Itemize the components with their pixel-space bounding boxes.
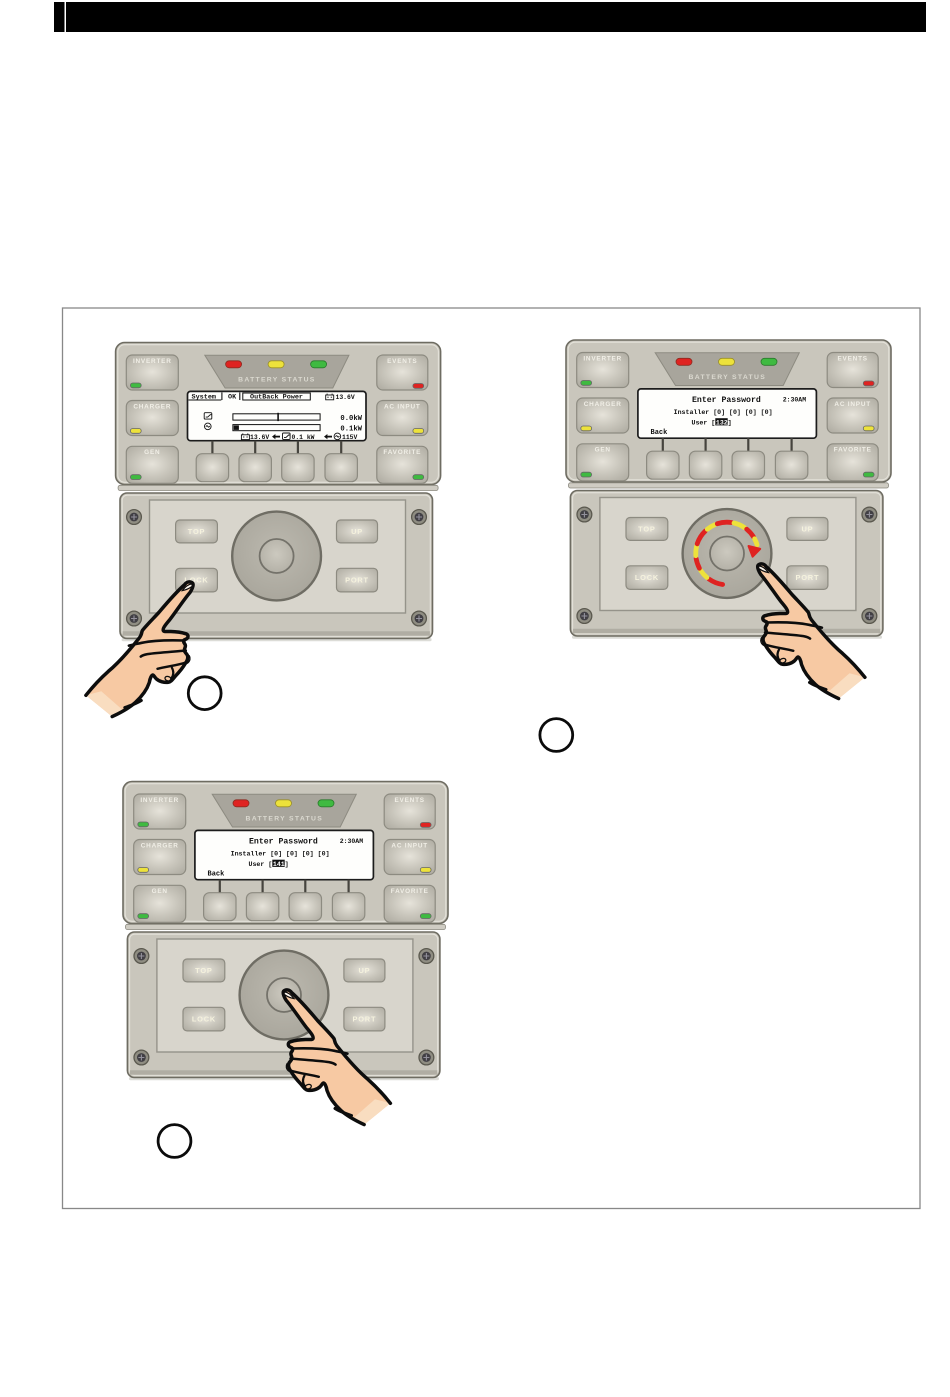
svg-text:BATTERY STATUS: BATTERY STATUS [689, 374, 766, 381]
svg-text:OutBack Power: OutBack Power [250, 394, 303, 402]
svg-text:CHARGER: CHARGER [584, 401, 622, 408]
svg-text:OK: OK [228, 394, 237, 402]
svg-text:13.6V: 13.6V [250, 434, 269, 441]
svg-text:FAVORITE: FAVORITE [383, 449, 421, 456]
svg-text:User [: User [ [249, 861, 273, 868]
svg-text:]: ] [728, 419, 732, 426]
svg-text:GEN: GEN [144, 449, 160, 456]
svg-text:FAVORITE: FAVORITE [834, 447, 872, 454]
svg-text:PORT: PORT [353, 1015, 377, 1024]
svg-text:13.6V: 13.6V [336, 394, 355, 401]
svg-text:LOCK: LOCK [192, 1015, 216, 1024]
svg-text:LOCK: LOCK [635, 573, 659, 582]
svg-text:UP: UP [358, 966, 370, 975]
svg-text:CHARGER: CHARGER [133, 403, 171, 410]
svg-text:FAVORITE: FAVORITE [391, 888, 429, 895]
svg-text:AC INPUT: AC INPUT [391, 842, 428, 849]
svg-text:0.0kW: 0.0kW [340, 415, 362, 423]
svg-text:UP: UP [801, 525, 813, 534]
svg-text:2:30AM: 2:30AM [783, 397, 807, 404]
svg-text:User [: User [ [692, 419, 716, 426]
svg-text:BATTERY STATUS: BATTERY STATUS [238, 377, 315, 384]
svg-text:0.1 kW: 0.1 kW [292, 434, 315, 441]
svg-text:GEN: GEN [595, 447, 611, 454]
svg-text:Installer [0] [0] [0] [0]: Installer [0] [0] [0] [0] [674, 409, 773, 416]
svg-text:GEN: GEN [152, 888, 168, 895]
svg-text:115V: 115V [342, 434, 358, 441]
svg-text:2:30AM: 2:30AM [340, 838, 364, 845]
svg-text:132: 132 [716, 419, 728, 426]
svg-text:Back: Back [208, 871, 225, 879]
svg-text:Enter Password: Enter Password [692, 395, 761, 405]
svg-text:0.1kW: 0.1kW [340, 426, 362, 434]
svg-text:141: 141 [273, 861, 285, 868]
svg-text:Installer [0] [0] [0] [0]: Installer [0] [0] [0] [0] [231, 850, 330, 857]
svg-text:EVENTS: EVENTS [387, 358, 417, 365]
svg-text:INVERTER: INVERTER [583, 355, 622, 362]
svg-text:EVENTS: EVENTS [838, 355, 868, 362]
svg-text:UP: UP [351, 527, 363, 536]
svg-text:Enter Password: Enter Password [249, 837, 318, 847]
svg-text:BATTERY STATUS: BATTERY STATUS [246, 816, 323, 823]
svg-text:TOP: TOP [195, 966, 212, 975]
svg-text:EVENTS: EVENTS [395, 797, 425, 804]
svg-text:INVERTER: INVERTER [140, 797, 179, 804]
svg-text:TOP: TOP [188, 527, 205, 536]
svg-text:INVERTER: INVERTER [133, 358, 172, 365]
svg-text:PORT: PORT [796, 573, 820, 582]
svg-text:TOP: TOP [638, 525, 655, 534]
svg-text:Back: Back [651, 429, 668, 437]
svg-text:AC INPUT: AC INPUT [834, 401, 871, 408]
svg-text:]: ] [285, 861, 289, 868]
svg-text:CHARGER: CHARGER [141, 842, 179, 849]
svg-text:AC INPUT: AC INPUT [384, 403, 421, 410]
svg-text:PORT: PORT [345, 576, 369, 585]
